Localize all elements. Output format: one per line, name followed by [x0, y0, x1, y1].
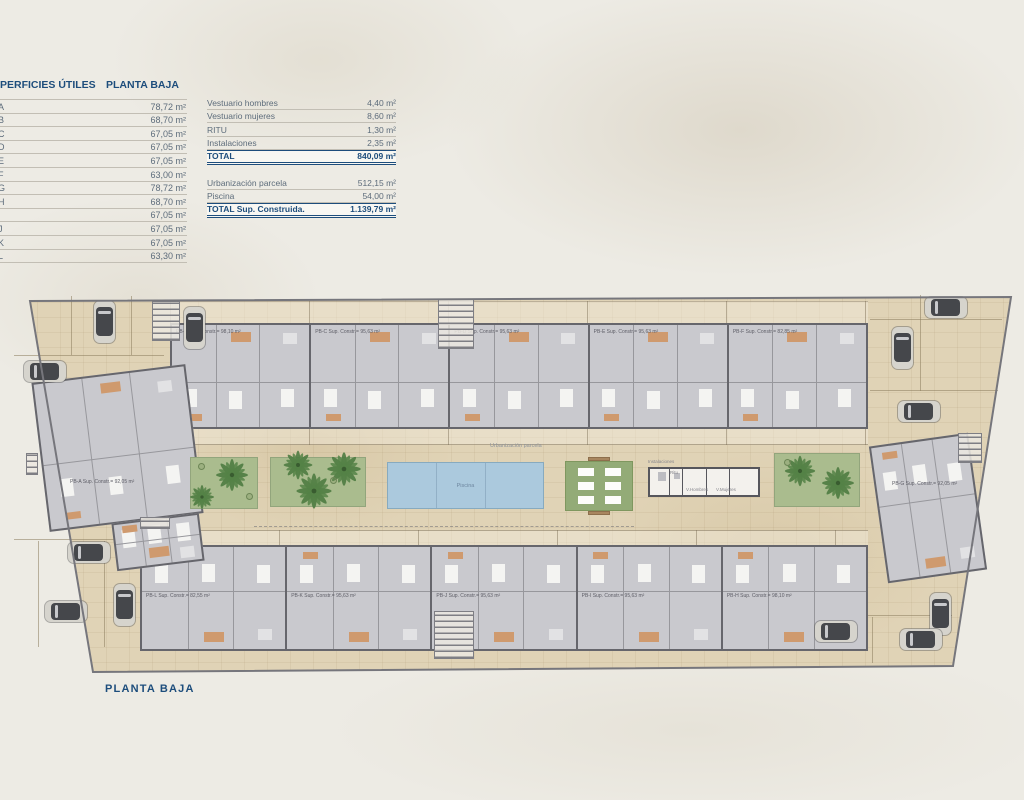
- table-row: Vestuario mujeres8,60 m²: [207, 110, 396, 123]
- table-row: B68,70 m²: [0, 114, 187, 128]
- pool-label: Piscina: [457, 483, 475, 489]
- unit-area: 67,05 m²: [150, 224, 187, 234]
- parking-line: [872, 617, 873, 663]
- site-label: Urbanización parcela: [490, 443, 542, 449]
- parking-line: [920, 295, 921, 391]
- pergola-sunbeds: [565, 461, 633, 511]
- swimming-pool: Piscina: [387, 462, 544, 509]
- unit-label: PB-E Sup. Constr.= 95,63 m²: [594, 329, 725, 335]
- parking-line: [131, 296, 132, 355]
- palm-tree-icon: [781, 452, 819, 490]
- unit-label: PB-H Sup. Constr.= 98,10 m²: [727, 593, 864, 599]
- unit-area: 78,72 m²: [150, 183, 187, 193]
- unit-letter: H: [0, 197, 5, 207]
- floor-plan: PB-B Sup. Constr.= 98,10 m² PB-C Sup. Co…: [14, 293, 1014, 678]
- parking-line: [14, 355, 164, 356]
- stairs: [958, 433, 982, 463]
- bush-icon: [784, 459, 791, 466]
- row-label: Instalaciones: [207, 138, 257, 148]
- areas-table-header: PERFICIES ÚTILES PLANTA BAJA: [0, 79, 187, 95]
- car-top-view: [184, 307, 205, 349]
- stairs: [26, 453, 38, 475]
- table-row: A78,72 m²: [0, 100, 187, 114]
- row-value: 1,30 m²: [367, 125, 396, 135]
- table-gap: [207, 165, 396, 177]
- unit-area: 67,05 m²: [150, 156, 187, 166]
- unit-area: 67,05 m²: [150, 210, 187, 220]
- row-value: 840,09 m²: [357, 151, 396, 161]
- services-room-label: Ritu: [670, 470, 678, 475]
- unit-label: PB-L Sup. Constr.= 82,55 m²: [146, 593, 283, 599]
- car-top-view: [815, 621, 857, 642]
- table-row: L63,30 m²: [0, 250, 187, 264]
- row-value: 1.139,79 m²: [350, 204, 396, 214]
- palm-tree-icon: [818, 463, 858, 503]
- table-row: J67,05 m²: [0, 222, 187, 236]
- areas-table: PERFICIES ÚTILES PLANTA BAJA A78,72 m² B…: [0, 79, 187, 263]
- unit-area: 63,30 m²: [150, 251, 187, 261]
- plan-caption: PLANTA BAJA: [105, 683, 195, 695]
- services-room-label: V.Mujeres: [716, 487, 736, 492]
- table-row: E67,05 m²: [0, 154, 187, 168]
- bush-icon: [198, 463, 205, 470]
- car-top-view: [114, 584, 135, 626]
- unit-letter: E: [0, 156, 4, 166]
- row-label: Piscina: [207, 191, 234, 201]
- stairs: [434, 611, 474, 659]
- stairs: [438, 299, 474, 349]
- table-row: I67,05 m²: [0, 209, 187, 223]
- apartment-band-top: PB-B Sup. Constr.= 98,10 m² PB-C Sup. Co…: [170, 323, 868, 429]
- row-label: Vestuario mujeres: [207, 111, 275, 121]
- table-row: Vestuario hombres4,40 m²: [207, 97, 396, 110]
- unit-area: 63,00 m²: [150, 170, 187, 180]
- row-label: Urbanización parcela: [207, 178, 287, 188]
- car-top-view: [925, 297, 967, 318]
- unit-label: PB-G Sup. Constr.= 92,05 m²: [892, 481, 957, 487]
- page: { "page": {"background": "#edebe4"}, "le…: [0, 0, 1024, 800]
- table-row: Instalaciones2,35 m²: [207, 137, 396, 150]
- services-room-label: V.Hombres: [686, 487, 708, 492]
- boundary-dashed-line: [254, 526, 634, 527]
- terrace-strip: [140, 530, 868, 546]
- row-value: 4,40 m²: [367, 98, 396, 108]
- unit-label: PB-D Sup. Constr.= 95,63 m²: [454, 329, 585, 335]
- table-row: Urbanización parcela512,15 m²: [207, 177, 396, 190]
- unit-letter: G: [0, 183, 5, 193]
- unit-letter: I: [0, 210, 1, 220]
- unit-label: PB-F Sup. Constr.= 82,85 m²: [733, 329, 864, 335]
- unit-label: PB-K Sup. Constr.= 95,63 m²: [291, 593, 428, 599]
- stairs: [152, 301, 180, 341]
- palm-tree-icon: [187, 482, 217, 512]
- car-top-view: [892, 327, 913, 369]
- table-row: K67,05 m²: [0, 236, 187, 250]
- table-row: C67,05 m²: [0, 127, 187, 141]
- car-top-view: [45, 601, 87, 622]
- unit-letter: L: [0, 251, 3, 261]
- car-top-view: [900, 629, 942, 650]
- apartment-unit: PB-K Sup. Constr.= 95,63 m²: [285, 547, 430, 649]
- areas-table-subtitle: PLANTA BAJA: [106, 79, 179, 91]
- areas-table-rows: A78,72 m² B68,70 m² C67,05 m² D67,05 m² …: [0, 99, 187, 263]
- bush-icon: [330, 477, 337, 484]
- unit-letter: A: [0, 102, 4, 112]
- car-top-view: [898, 401, 940, 422]
- unit-area: 67,05 m²: [150, 142, 187, 152]
- unit-area: 67,05 m²: [150, 238, 187, 248]
- row-value: 54,00 m²: [362, 191, 396, 201]
- parking-line: [38, 541, 39, 647]
- unit-label: PB-A Sup. Constr.= 92,05 m²: [70, 479, 134, 485]
- unit-letter: D: [0, 142, 5, 152]
- car-top-view: [24, 361, 66, 382]
- row-label: TOTAL: [207, 151, 235, 161]
- parking-line: [71, 296, 72, 355]
- row-label: Vestuario hombres: [207, 98, 278, 108]
- parking-line: [870, 319, 1002, 320]
- services-title: Instalaciones: [648, 459, 674, 464]
- table-row: RITU1,30 m²: [207, 123, 396, 136]
- table-row: D67,05 m²: [0, 141, 187, 155]
- entry-strip: [170, 301, 868, 323]
- car-top-view: [68, 542, 110, 563]
- unit-area: 67,05 m²: [150, 129, 187, 139]
- apartment-unit: PB-F Sup. Constr.= 82,85 m²: [727, 325, 866, 427]
- table-row: G78,72 m²: [0, 182, 187, 196]
- unit-letter: J: [0, 224, 3, 234]
- apartment-band-bottom: PB-L Sup. Constr.= 82,55 m² PB-K Sup. Co…: [140, 545, 868, 651]
- car-top-view: [94, 301, 115, 343]
- row-label: TOTAL Sup. Construida.: [207, 204, 305, 214]
- apartment-unit: PB-E Sup. Constr.= 95,63 m²: [588, 325, 727, 427]
- unit-label: PB-C Sup. Constr.= 95,63 m²: [315, 329, 446, 335]
- stairs: [140, 517, 170, 529]
- unit-area: 68,70 m²: [150, 197, 187, 207]
- unit-area: 68,70 m²: [150, 115, 187, 125]
- unit-letter: B: [0, 115, 4, 125]
- unit-letter: C: [0, 129, 5, 139]
- total-row: TOTAL840,09 m²: [207, 150, 396, 165]
- apartment-unit: PB-C Sup. Constr.= 95,63 m²: [309, 325, 448, 427]
- total-row: TOTAL Sup. Construida.1.139,79 m²: [207, 203, 396, 218]
- palm-tree-icon: [292, 469, 336, 513]
- unit-letter: F: [0, 170, 4, 180]
- unit-area: 78,72 m²: [150, 102, 187, 112]
- table-row: Piscina54,00 m²: [207, 190, 396, 203]
- summary-table: Vestuario hombres4,40 m² Vestuario mujer…: [207, 97, 396, 218]
- palm-tree-icon: [212, 455, 252, 495]
- row-value: 8,60 m²: [367, 111, 396, 121]
- unit-label: PB-J Sup. Constr.= 95,63 m²: [436, 593, 573, 599]
- row-value: 512,15 m²: [358, 178, 396, 188]
- apartment-unit-a: [31, 364, 203, 532]
- parking-line: [870, 390, 998, 391]
- row-value: 2,35 m²: [367, 138, 396, 148]
- apartment-unit: PB-I Sup. Constr.= 95,63 m²: [576, 547, 721, 649]
- unit-letter: K: [0, 238, 4, 248]
- table-row: H68,70 m²: [0, 195, 187, 209]
- services-building: [648, 467, 760, 497]
- unit-label: PB-I Sup. Constr.= 95,63 m²: [582, 593, 719, 599]
- bush-icon: [246, 493, 253, 500]
- table-row: F63,00 m²: [0, 168, 187, 182]
- row-label: RITU: [207, 125, 227, 135]
- areas-table-title: PERFICIES ÚTILES: [0, 79, 96, 91]
